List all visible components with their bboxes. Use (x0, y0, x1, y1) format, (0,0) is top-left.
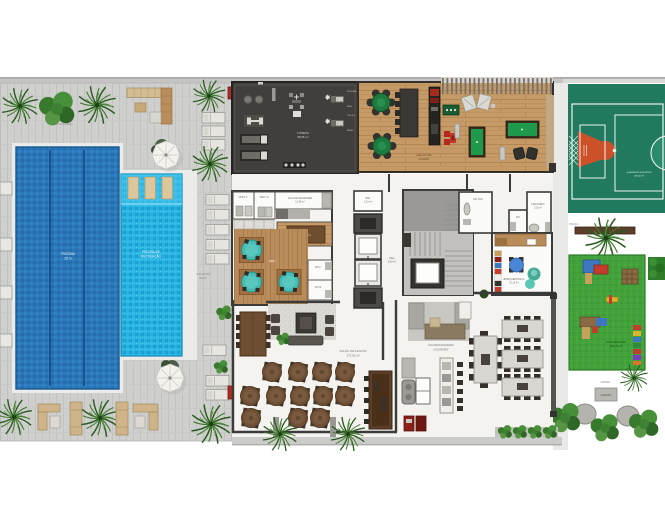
svg-text:HALL: HALL (389, 257, 396, 260)
svg-text:REMO: REMO (347, 130, 354, 132)
svg-text:ACESSO: ACESSO (601, 393, 612, 397)
svg-text:VEST. M: VEST. M (259, 196, 268, 199)
svg-text:DML: DML (365, 197, 371, 200)
svg-text:WC PCD: WC PCD (473, 199, 483, 201)
svg-text:SALÃO DE FESTAS: SALÃO DE FESTAS (339, 348, 366, 353)
svg-text:ESTEIRA: ESTEIRA (347, 90, 357, 93)
svg-text:FRALDÁRIO: FRALDÁRIO (531, 203, 544, 206)
svg-text:CROSS: CROSS (347, 115, 355, 117)
svg-text:173,92 m²: 173,92 m² (346, 353, 360, 357)
svg-text:146,76 m²: 146,76 m² (610, 344, 623, 348)
svg-text:VEST. F: VEST. F (239, 196, 248, 199)
svg-text:JARDIM: JARDIM (600, 380, 610, 384)
svg-text:25 m: 25 m (64, 257, 72, 261)
svg-text:BIKE: BIKE (347, 106, 353, 108)
svg-text:88,95 m²: 88,95 m² (297, 135, 308, 139)
svg-text:12,45 m²: 12,45 m² (295, 201, 305, 204)
svg-text:PRAÇA: PRAÇA (570, 222, 579, 226)
svg-text:GOURMET: GOURMET (433, 347, 449, 351)
svg-text:WC: WC (516, 217, 520, 219)
svg-text:WC F: WC F (315, 267, 321, 269)
svg-text:PISCINA DE: PISCINA DE (142, 250, 160, 254)
svg-text:5,30 m²: 5,30 m² (534, 207, 542, 210)
svg-text:CHURRASQUEIRA: CHURRASQUEIRA (428, 343, 454, 347)
svg-text:BRINQUEDOTECA: BRINQUEDOTECA (504, 278, 525, 281)
svg-text:JOGOS: JOGOS (419, 157, 430, 161)
svg-text:SALA DE MASSAGEM: SALA DE MASSAGEM (288, 197, 312, 200)
svg-text:DECK: DECK (199, 276, 206, 280)
svg-text:QUADRA DE ESPORTES: QUADRA DE ESPORTES (626, 171, 652, 174)
svg-text:SPA: SPA (269, 259, 275, 263)
svg-text:RECREAÇÃO: RECREAÇÃO (141, 254, 162, 259)
svg-text:PISCINA: PISCINA (61, 252, 75, 256)
svg-text:21,10 m²: 21,10 m² (509, 282, 519, 285)
svg-text:3,10 m²: 3,10 m² (364, 201, 372, 204)
svg-text:8,20 m²: 8,20 m² (388, 261, 396, 264)
svg-text:WC M: WC M (315, 287, 321, 289)
svg-text:SOLARIUM: SOLARIUM (196, 272, 210, 276)
svg-text:269,34 m²: 269,34 m² (634, 175, 644, 178)
